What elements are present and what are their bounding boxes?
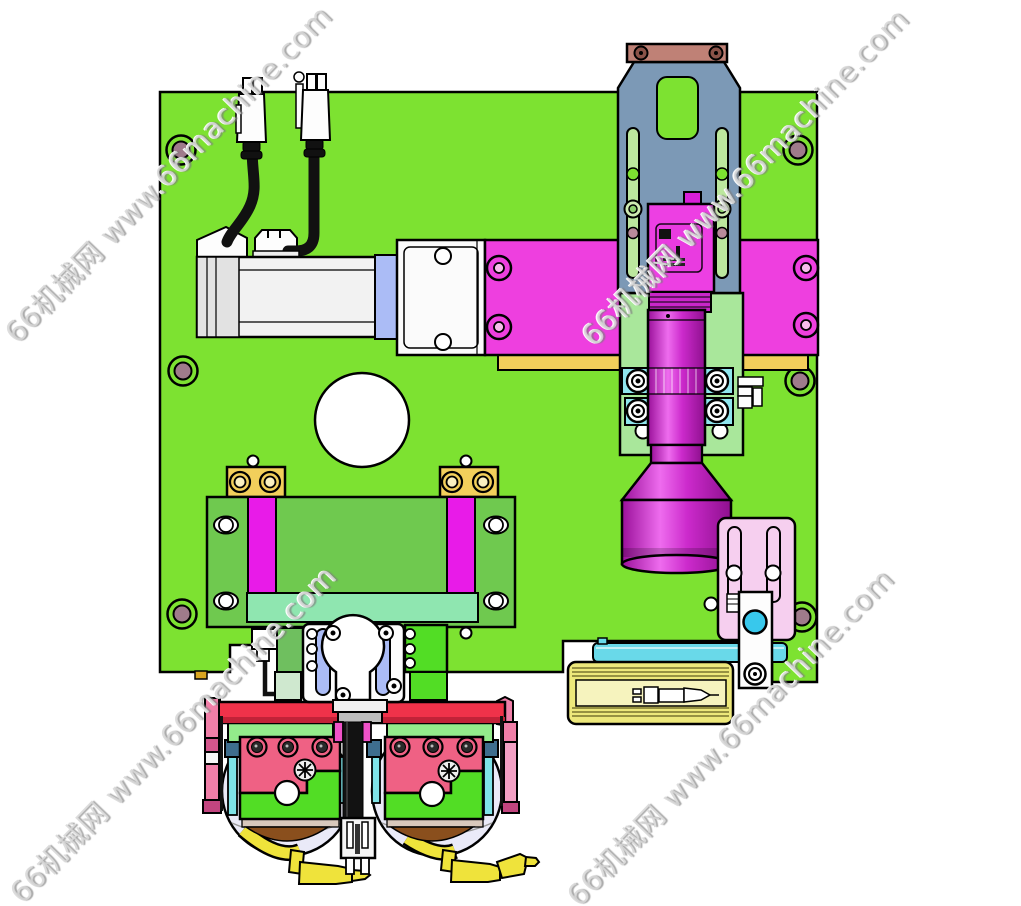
motor-flange: [397, 240, 485, 355]
machine-drawing: [0, 0, 1021, 906]
pivot-hole-right: [420, 782, 444, 806]
plate-center-hole: [315, 373, 409, 467]
clamp-side-connector: [738, 377, 763, 408]
laser-sensor-block: [568, 662, 733, 724]
servo-motor: [197, 251, 397, 339]
camera-body: [648, 192, 714, 312]
camera-bracket-window: [657, 77, 698, 139]
star-screw-left: [295, 760, 316, 781]
stage-rail-right: [447, 497, 475, 593]
cad-assembly-view: 66机械网 www.66machine.com 66机械网 www.66mach…: [0, 0, 1021, 906]
pivot-hole-left: [275, 781, 299, 805]
stage-rail-left: [248, 497, 276, 593]
rotary-actuator: [275, 615, 447, 702]
gripper-shaft: [343, 722, 363, 820]
gold-fitting: [195, 671, 207, 679]
side-bar-right: [500, 716, 519, 813]
sensor-cyan-dot: [744, 611, 767, 634]
side-bar-left: [203, 698, 223, 813]
motor-blue-band: [375, 255, 397, 339]
bracket-mount-bar: [627, 44, 727, 62]
power-plug-left: [236, 78, 266, 142]
star-screw-right: [439, 761, 460, 782]
